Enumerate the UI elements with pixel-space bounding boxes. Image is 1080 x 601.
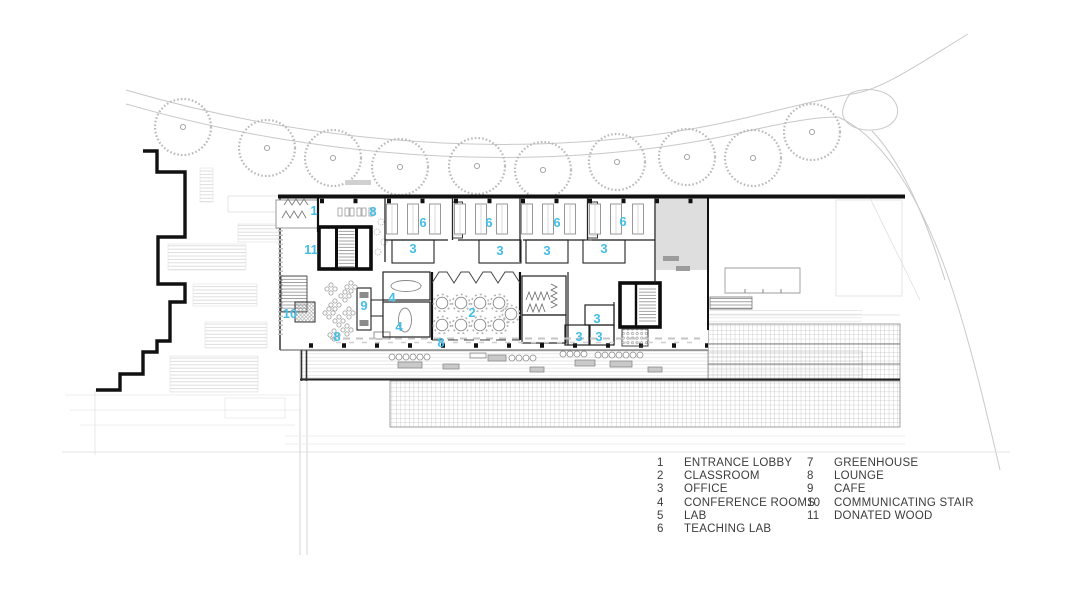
legend-item: 2 CLASSROOM <box>657 470 815 483</box>
tree-icon <box>372 139 428 195</box>
tree-icon <box>155 99 211 155</box>
legend-item: 3 OFFICE <box>657 483 815 496</box>
legend-item-label: CONFERENCE ROOMS <box>684 497 815 510</box>
legend-item-label: CAFE <box>834 483 866 496</box>
room-number-label: 4 <box>388 290 396 305</box>
legend-item-label: COMMUNICATING STAIR <box>834 497 974 510</box>
site-boundary <box>96 151 185 390</box>
room-number-label: 6 <box>485 215 492 230</box>
room-number-label: 9 <box>360 298 367 313</box>
room-number-label: 11 <box>304 242 318 257</box>
legend-column-1: 1 ENTRANCE LOBBY 2 CLASSROOM 3 OFFICE 4 … <box>657 457 815 536</box>
right-court <box>708 198 920 315</box>
legend-item-number: 6 <box>657 523 684 536</box>
legend-item-label: OFFICE <box>684 483 728 496</box>
room-number-label: 6 <box>553 215 560 230</box>
room-number-label: 8 <box>369 204 376 219</box>
stair-core-west <box>319 227 371 269</box>
legend-column-2: 7 GREENHOUSE 8 LOUNGE 9 CAFE 10 COMMUNIC… <box>807 457 974 523</box>
legend-item: 10 COMMUNICATING STAIR <box>807 497 974 510</box>
legend-item-label: CLASSROOM <box>684 470 760 483</box>
tree-row <box>155 99 840 198</box>
room-number-label: 3 <box>593 311 600 326</box>
legend-item-number: 3 <box>657 483 684 496</box>
room-number-label: 3 <box>595 329 602 344</box>
legend-item-label: DONATED WOOD <box>834 510 933 523</box>
room-number-label: 8 <box>333 329 340 344</box>
room-number-label: 4 <box>395 319 403 334</box>
room-number-label: 8 <box>437 335 444 350</box>
legend-item: 11 DONATED WOOD <box>807 510 974 523</box>
legend-item: 4 CONFERENCE ROOMS <box>657 497 815 510</box>
legend-item-number: 7 <box>807 457 834 470</box>
tree-icon <box>659 129 715 185</box>
tree-icon <box>589 134 645 190</box>
legend-item: 8 LOUNGE <box>807 470 974 483</box>
legend-item-number: 1 <box>657 457 684 470</box>
room-number-label: 3 <box>496 243 503 258</box>
tree-icon <box>784 104 840 160</box>
legend-item-number: 8 <box>807 470 834 483</box>
room-number-label: 6 <box>619 214 626 229</box>
floor-plan-page: 1 8 6 6 6 6 3 3 3 3 11 10 9 4 4 2 8 8 3 … <box>0 0 1080 601</box>
legend-item: 1 ENTRANCE LOBBY <box>657 457 815 470</box>
tree-icon <box>449 138 505 194</box>
legend-item-label: LAB <box>684 510 707 523</box>
tree-icon <box>305 130 361 186</box>
legend-item-label: TEACHING LAB <box>684 523 771 536</box>
legend-item-number: 2 <box>657 470 684 483</box>
legend-item: 7 GREENHOUSE <box>807 457 974 470</box>
room-number-label: 1 <box>310 203 317 218</box>
room-number-label: 3 <box>575 329 582 344</box>
legend-item-label: LOUNGE <box>834 470 884 483</box>
exterior-stair <box>710 297 752 309</box>
legend-item-label: GREENHOUSE <box>834 457 918 470</box>
legend-item-number: 4 <box>657 497 684 510</box>
tree-icon <box>725 130 781 186</box>
legend-item-number: 9 <box>807 483 834 496</box>
room-number-label: 6 <box>419 215 426 230</box>
room-number-label: 3 <box>409 241 416 256</box>
tree-icon <box>515 142 571 198</box>
room-number-label: 10 <box>283 306 297 321</box>
room-number-label: 3 <box>600 241 607 256</box>
legend-item: 5 LAB <box>657 510 815 523</box>
legend-item-number: 11 <box>807 510 834 523</box>
legend-item: 9 CAFE <box>807 483 974 496</box>
legend-item-number: 10 <box>807 497 834 510</box>
tree-icon <box>239 120 295 176</box>
room-number-label: 3 <box>543 243 550 258</box>
legend-item-label: ENTRANCE LOBBY <box>684 457 792 470</box>
legend-item: 6 TEACHING LAB <box>657 523 815 536</box>
room-number-label: 2 <box>468 305 475 320</box>
legend-item-number: 5 <box>657 510 684 523</box>
